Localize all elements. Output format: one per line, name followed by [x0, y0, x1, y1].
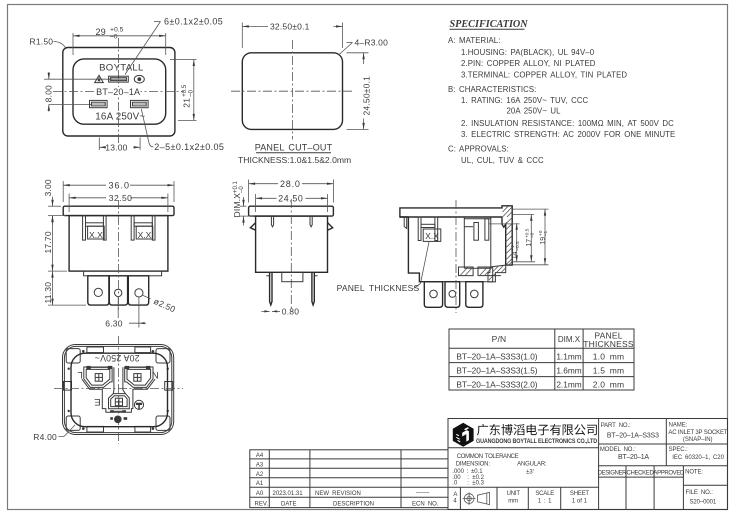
svg-text:PANEL CUT–OUT: PANEL CUT–OUT — [255, 143, 333, 153]
svg-text:SHEET: SHEET — [570, 491, 590, 497]
svg-text:P/N: P/N — [492, 334, 507, 344]
svg-text:DIM.X: DIM.X — [558, 335, 581, 344]
svg-text:BT–20–1A–S3S3(1.5): BT–20–1A–S3S3(1.5) — [456, 366, 537, 376]
svg-text:DIM.X: DIM.X — [232, 193, 242, 218]
svg-text:2.0 mm: 2.0 mm — [593, 379, 625, 389]
svg-text:UNIT: UNIT — [507, 491, 521, 497]
svg-text:0.80: 0.80 — [282, 307, 299, 317]
svg-text:IEC 60320–1, C20: IEC 60320–1, C20 — [672, 455, 724, 461]
svg-text:±3': ±3' — [526, 469, 534, 475]
svg-text:BOYTALL: BOYTALL — [99, 62, 144, 73]
svg-text:32.50±0.1: 32.50±0.1 — [270, 21, 310, 31]
svg-text:–1: –1 — [543, 230, 549, 236]
svg-text:21: 21 — [181, 98, 191, 108]
svg-text:1.1mm: 1.1mm — [556, 352, 581, 362]
svg-text:A0: A0 — [256, 491, 264, 497]
svg-text:NEW REVISION: NEW REVISION — [315, 491, 361, 497]
svg-text:–0: –0 — [110, 34, 118, 41]
svg-text:–0: –0 — [530, 232, 536, 238]
svg-text:FILE NO.:: FILE NO.: — [686, 490, 714, 496]
svg-text:MODEL NO.:: MODEL NO.: — [600, 447, 636, 453]
svg-text:BT–20–1A–S3S3(1.0): BT–20–1A–S3S3(1.0) — [456, 352, 537, 362]
svg-text:–0: –0 — [239, 186, 245, 193]
svg-text:NAME:: NAME: — [669, 422, 688, 428]
svg-text:8.00: 8.00 — [43, 85, 53, 102]
svg-text:DIMENSION:: DIMENSION: — [456, 462, 491, 468]
svg-text:GUANGDONG BOYTALL ELECTRONICS: GUANGDONG BOYTALL ELECTRONICS CO.,LTD — [476, 438, 598, 445]
svg-text:E: E — [94, 396, 100, 407]
svg-text:16A 250V~: 16A 250V~ — [95, 112, 145, 123]
svg-text:S20–0001: S20–0001 — [690, 500, 717, 506]
svg-text:SPEC.:: SPEC.: — [669, 447, 689, 453]
svg-text:–0: –0 — [188, 89, 194, 96]
svg-text:ANGULAR:: ANGULAR: — [517, 462, 547, 468]
svg-text:4–R3.00: 4–R3.00 — [355, 38, 389, 48]
svg-text:NOTE:: NOTE: — [685, 469, 703, 475]
svg-text:B: CHARACTERISTICS:: B: CHARACTERISTICS: — [448, 85, 536, 94]
svg-text:SCALE: SCALE — [535, 491, 554, 497]
svg-text:UL, CUL, TUV & CCC: UL, CUL, TUV & CCC — [461, 156, 544, 165]
svg-text:CHECKED: CHECKED — [627, 471, 655, 477]
svg-text:A2: A2 — [256, 472, 264, 478]
svg-text:2023.01.31: 2023.01.31 — [273, 491, 304, 497]
svg-text:3. ELECTRIC STRENGTH: AC 2000V: 3. ELECTRIC STRENGTH: AC 2000V FOR ONE M… — [461, 130, 675, 139]
svg-text:29: 29 — [96, 27, 106, 37]
svg-text:C: APPROVALS:: C: APPROVALS: — [448, 145, 509, 154]
svg-text:2. INSULATION RESISTANCE: 100M: 2. INSULATION RESISTANCE: 100MΩ MIN, AT … — [461, 119, 674, 128]
svg-text:28.0: 28.0 — [280, 179, 301, 189]
svg-text:+0.1: +0.1 — [233, 180, 239, 193]
svg-text:–0.5: –0.5 — [515, 241, 521, 251]
svg-text:1 of 1: 1 of 1 — [572, 499, 588, 505]
svg-text:A3: A3 — [256, 462, 264, 468]
svg-text:BT–20–1A: BT–20–1A — [96, 87, 140, 97]
svg-text:(SNAP–IN): (SNAP–IN) — [683, 437, 713, 443]
svg-text:1 : 1: 1 : 1 — [538, 499, 552, 505]
svg-text:2.PIN: COPPER ALLOY, NI PLATED: 2.PIN: COPPER ALLOY, NI PLATED — [461, 59, 596, 68]
svg-text:X.X: X.X — [138, 230, 152, 240]
svg-text:13.00: 13.00 — [105, 143, 127, 153]
svg-text:DESIGNER: DESIGNER — [598, 471, 628, 477]
svg-text:+0.5: +0.5 — [110, 27, 124, 34]
svg-text:COMMON TOLERANCE: COMMON TOLERANCE — [457, 454, 519, 460]
svg-text:DESCRIPTION: DESCRIPTION — [333, 501, 374, 507]
svg-text:PANEL THICKNESS: PANEL THICKNESS — [337, 283, 420, 293]
svg-text:A: A — [453, 492, 457, 498]
svg-text:A: MATERIAL:: A: MATERIAL: — [448, 36, 501, 45]
svg-text:20A 250V~: 20A 250V~ — [95, 353, 140, 363]
svg-text:14: 14 — [511, 251, 518, 259]
svg-text:APPROVED: APPROVED — [653, 471, 685, 477]
svg-text:36.0: 36.0 — [109, 180, 131, 190]
svg-text:32.50: 32.50 — [109, 193, 133, 203]
svg-text:R4.00: R4.00 — [33, 432, 57, 442]
svg-text:20A 250V~ UL: 20A 250V~ UL — [507, 107, 562, 116]
svg-text:19: 19 — [540, 237, 547, 245]
svg-text:A1: A1 — [256, 481, 264, 487]
svg-text:X.X: X.X — [425, 231, 439, 241]
svg-text:11.30: 11.30 — [43, 282, 53, 304]
svg-text:UL: UL — [114, 417, 121, 423]
svg-text:17.70: 17.70 — [43, 231, 53, 253]
svg-text:BT–20–1A–S3S3(2.0): BT–20–1A–S3S3(2.0) — [456, 379, 537, 389]
svg-text:1.6mm: 1.6mm — [556, 366, 581, 376]
svg-text:BT–20–1A: BT–20–1A — [618, 454, 649, 461]
svg-text:6.30: 6.30 — [105, 318, 122, 328]
svg-text:1.0 mm: 1.0 mm — [593, 352, 625, 362]
svg-text:+0.5: +0.5 — [182, 84, 188, 97]
svg-text:24.50±0.1: 24.50±0.1 — [362, 76, 372, 116]
svg-text:1. RATING: 16A 250V~ TUV, CCC: 1. RATING: 16A 250V~ TUV, CCC — [461, 96, 589, 105]
svg-text:X.X: X.X — [89, 230, 103, 240]
svg-text:REV.: REV. — [255, 501, 269, 507]
svg-text:6±0.1x2±0.05: 6±0.1x2±0.05 — [164, 16, 223, 26]
svg-text:17: 17 — [526, 239, 533, 247]
svg-text:AC INLET 3P SOCKET: AC INLET 3P SOCKET — [668, 430, 727, 436]
svg-text:DATE: DATE — [281, 501, 297, 507]
svg-text:THICKNESS: THICKNESS — [583, 339, 634, 349]
svg-text:R1.50: R1.50 — [30, 37, 54, 47]
svg-text:mm: mm — [508, 499, 518, 505]
svg-text:2.1mm: 2.1mm — [556, 379, 581, 389]
svg-text:BT–20–1A–S3S3: BT–20–1A–S3S3 — [607, 432, 659, 439]
svg-text:1.HOUSING: PA(BLACK), UL 94V–0: 1.HOUSING: PA(BLACK), UL 94V–0 — [461, 48, 595, 57]
svg-text:3.00: 3.00 — [43, 179, 53, 196]
svg-text:A4: A4 — [256, 453, 264, 459]
svg-text:24.50: 24.50 — [278, 194, 303, 204]
svg-text:3.TERMINAL: COPPER ALLOY, TIN: 3.TERMINAL: COPPER ALLOY, TIN PLATED — [461, 70, 627, 79]
svg-text:SPECIFICATION: SPECIFICATION — [450, 19, 529, 30]
svg-text:PART NO.:: PART NO.: — [601, 423, 631, 429]
svg-text:1.5 mm: 1.5 mm — [593, 366, 625, 376]
svg-text:.0 : ±0.3: .0 : ±0.3 — [452, 481, 484, 487]
svg-text:2–5±0.1x2±0.05: 2–5±0.1x2±0.05 — [154, 142, 224, 152]
svg-text:––––: –––– — [416, 491, 430, 497]
svg-text:ECN NO.: ECN NO. — [412, 501, 439, 507]
svg-text:THICKNESS:1.0&1.5&2.0mm: THICKNESS:1.0&1.5&2.0mm — [238, 155, 351, 165]
svg-text:L: L — [77, 369, 83, 380]
